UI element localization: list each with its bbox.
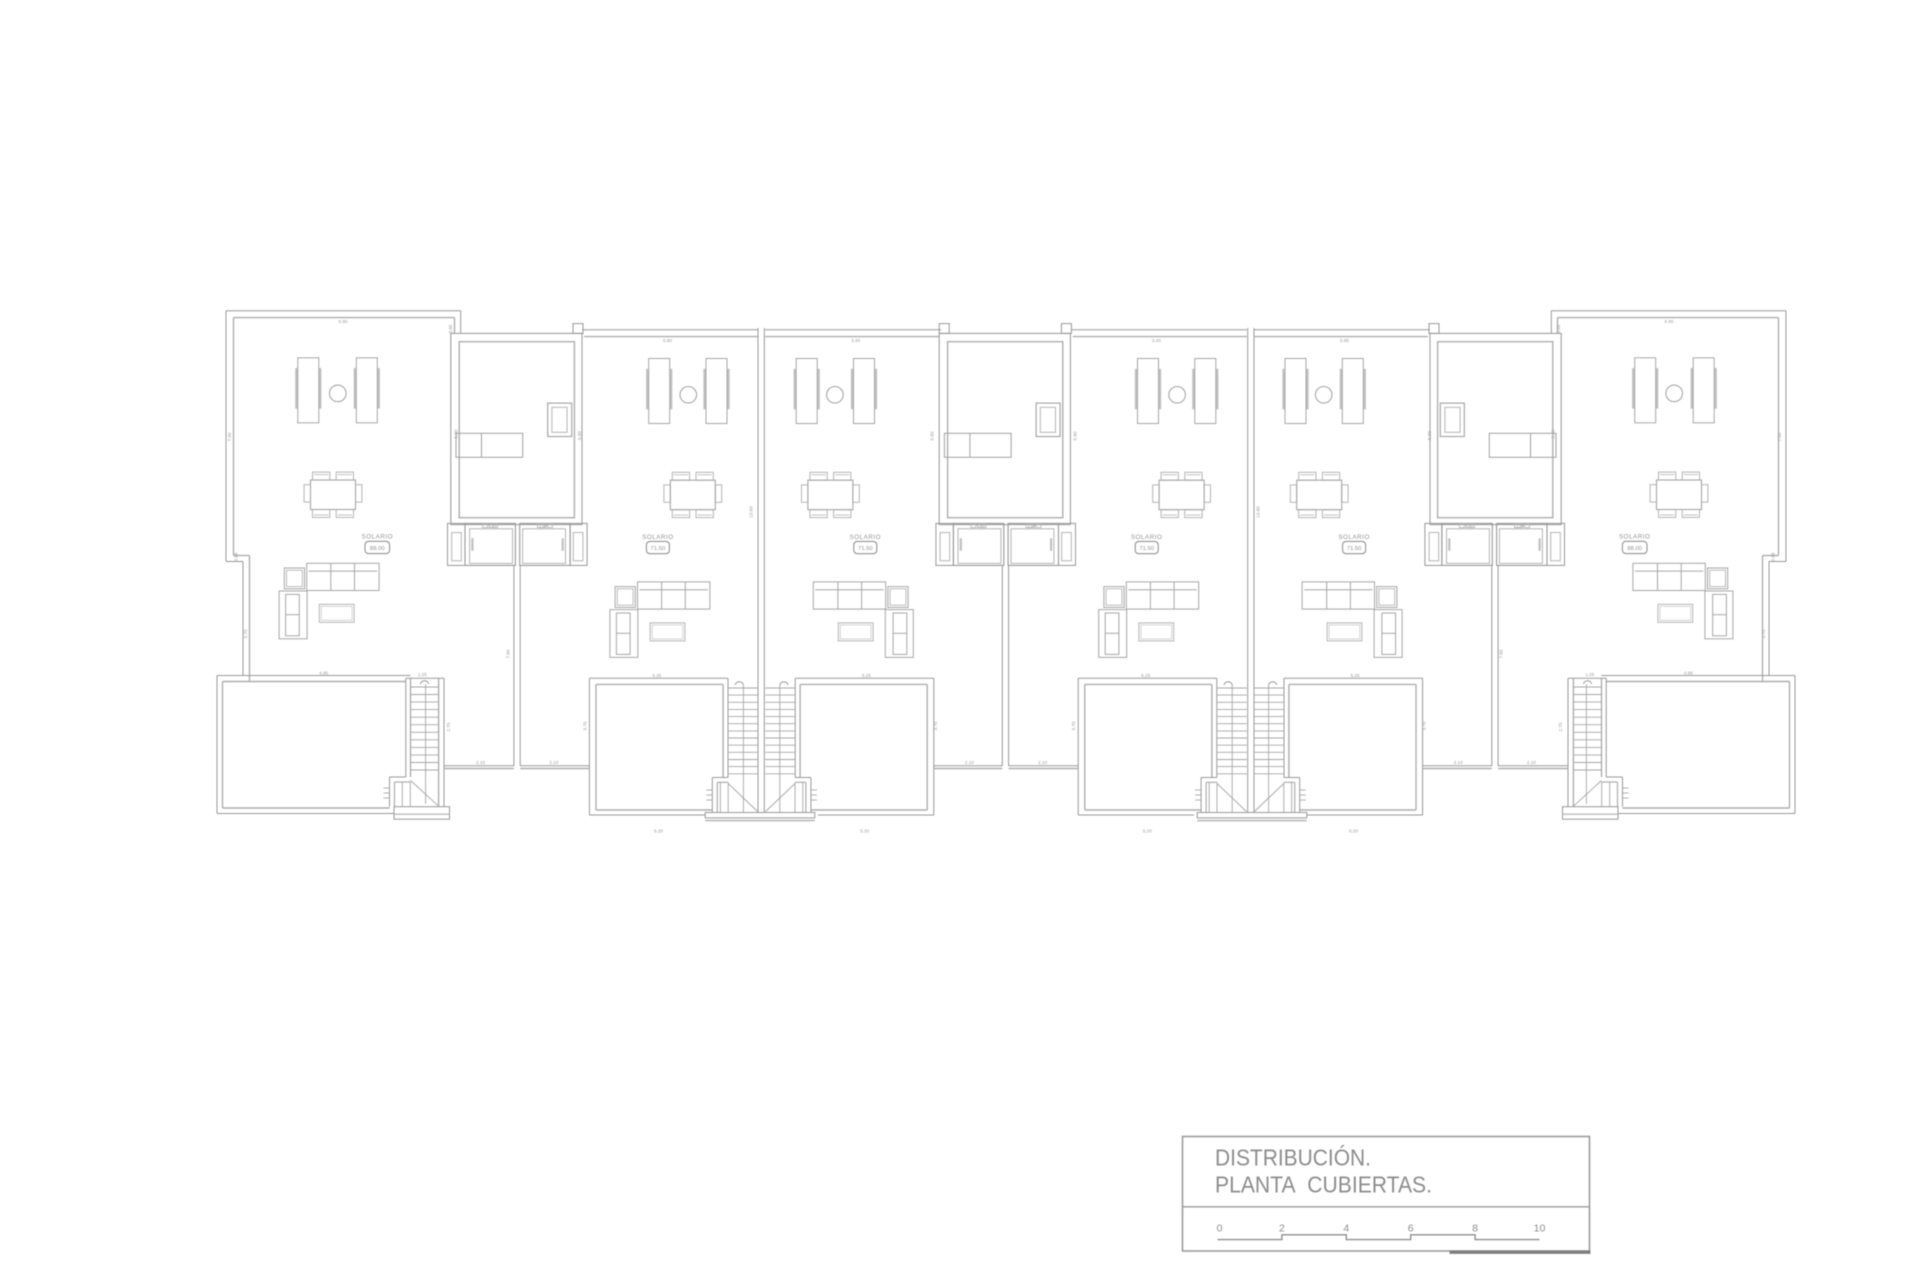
svg-text:1.90: 1.90 xyxy=(1027,524,1036,529)
svg-text:2.10: 2.10 xyxy=(1038,760,1047,765)
svg-text:5.20: 5.20 xyxy=(1143,829,1152,834)
svg-text:3.70: 3.70 xyxy=(582,721,587,730)
svg-text:SOLARIO: SOLARIO xyxy=(362,534,394,541)
svg-text:71.50: 71.50 xyxy=(858,546,873,552)
svg-text:5.80: 5.80 xyxy=(1073,431,1078,440)
svg-text:6.90: 6.90 xyxy=(1665,319,1674,324)
svg-text:5.80: 5.80 xyxy=(930,431,935,440)
svg-text:3.85: 3.85 xyxy=(448,324,453,333)
svg-text:4.86: 4.86 xyxy=(319,670,328,675)
svg-text:1.90: 1.90 xyxy=(1465,524,1474,529)
svg-text:SOLARIO: SOLARIO xyxy=(850,534,882,541)
svg-text:3.70: 3.70 xyxy=(1761,629,1766,638)
svg-text:7.00: 7.00 xyxy=(227,432,232,441)
svg-text:13.60: 13.60 xyxy=(748,506,753,518)
svg-text:1.90: 1.90 xyxy=(488,524,497,529)
svg-text:2.70: 2.70 xyxy=(446,722,451,731)
svg-text:0.88: 0.88 xyxy=(1771,552,1776,561)
svg-text:5.25: 5.25 xyxy=(1351,673,1360,678)
svg-text:71.50: 71.50 xyxy=(651,546,666,552)
svg-text:8: 8 xyxy=(1472,1223,1478,1235)
svg-text:DISTRIBUCIÓN.: DISTRIBUCIÓN. xyxy=(1215,1145,1371,1171)
svg-text:3.85: 3.85 xyxy=(1556,324,1561,333)
svg-text:1.90: 1.90 xyxy=(1516,524,1525,529)
svg-text:71.50: 71.50 xyxy=(1347,546,1362,552)
svg-text:2.10: 2.10 xyxy=(476,760,485,765)
svg-text:1.25: 1.25 xyxy=(1585,672,1594,677)
svg-text:10: 10 xyxy=(1534,1223,1546,1235)
svg-text:5.20: 5.20 xyxy=(654,829,663,834)
svg-text:7.60: 7.60 xyxy=(506,649,511,658)
svg-text:5.20: 5.20 xyxy=(860,829,869,834)
svg-text:3.70: 3.70 xyxy=(1071,721,1076,730)
svg-text:2.70: 2.70 xyxy=(1558,722,1563,731)
svg-text:6.90: 6.90 xyxy=(339,319,348,324)
svg-text:88.00: 88.00 xyxy=(370,546,385,552)
svg-text:2.10: 2.10 xyxy=(1527,760,1536,765)
svg-text:4: 4 xyxy=(1343,1223,1349,1235)
svg-text:5.80: 5.80 xyxy=(663,338,672,343)
svg-text:SOLARIO: SOLARIO xyxy=(642,534,674,541)
svg-text:2: 2 xyxy=(1279,1223,1285,1235)
svg-text:0.88: 0.88 xyxy=(234,552,239,561)
svg-text:PLANTA CUBIERTAS.: PLANTA CUBIERTAS. xyxy=(1215,1172,1432,1198)
svg-text:5.80: 5.80 xyxy=(1340,338,1349,343)
svg-text:1.25: 1.25 xyxy=(418,672,427,677)
svg-text:1.90: 1.90 xyxy=(539,524,548,529)
svg-text:SOLARIO: SOLARIO xyxy=(1619,534,1651,541)
svg-text:7.60: 7.60 xyxy=(1499,649,1504,658)
svg-text:1.90: 1.90 xyxy=(976,524,985,529)
svg-text:3.70: 3.70 xyxy=(933,721,938,730)
svg-text:2.10: 2.10 xyxy=(965,760,974,765)
svg-text:71.50: 71.50 xyxy=(1139,546,1154,552)
svg-text:3.40: 3.40 xyxy=(851,338,860,343)
svg-text:2.10: 2.10 xyxy=(549,760,558,765)
svg-text:3.70: 3.70 xyxy=(1422,721,1427,730)
svg-text:6: 6 xyxy=(1408,1223,1414,1235)
svg-text:5.80: 5.80 xyxy=(577,431,582,440)
svg-text:4.86: 4.86 xyxy=(1684,670,1693,675)
svg-text:5.20: 5.20 xyxy=(1349,829,1358,834)
svg-text:SOLARIO: SOLARIO xyxy=(1131,534,1163,541)
svg-text:5.25: 5.25 xyxy=(652,673,661,678)
svg-text:5.25: 5.25 xyxy=(862,673,871,678)
svg-text:88.00: 88.00 xyxy=(1627,546,1642,552)
svg-text:3.40: 3.40 xyxy=(1152,338,1161,343)
svg-text:SOLARIO: SOLARIO xyxy=(1338,534,1370,541)
svg-text:3.70: 3.70 xyxy=(243,629,248,638)
svg-text:0: 0 xyxy=(1217,1223,1223,1235)
svg-text:7.00: 7.00 xyxy=(1777,432,1782,441)
svg-text:2.10: 2.10 xyxy=(1454,760,1463,765)
svg-text:5.25: 5.25 xyxy=(1141,673,1150,678)
svg-text:13.60: 13.60 xyxy=(1256,506,1261,518)
